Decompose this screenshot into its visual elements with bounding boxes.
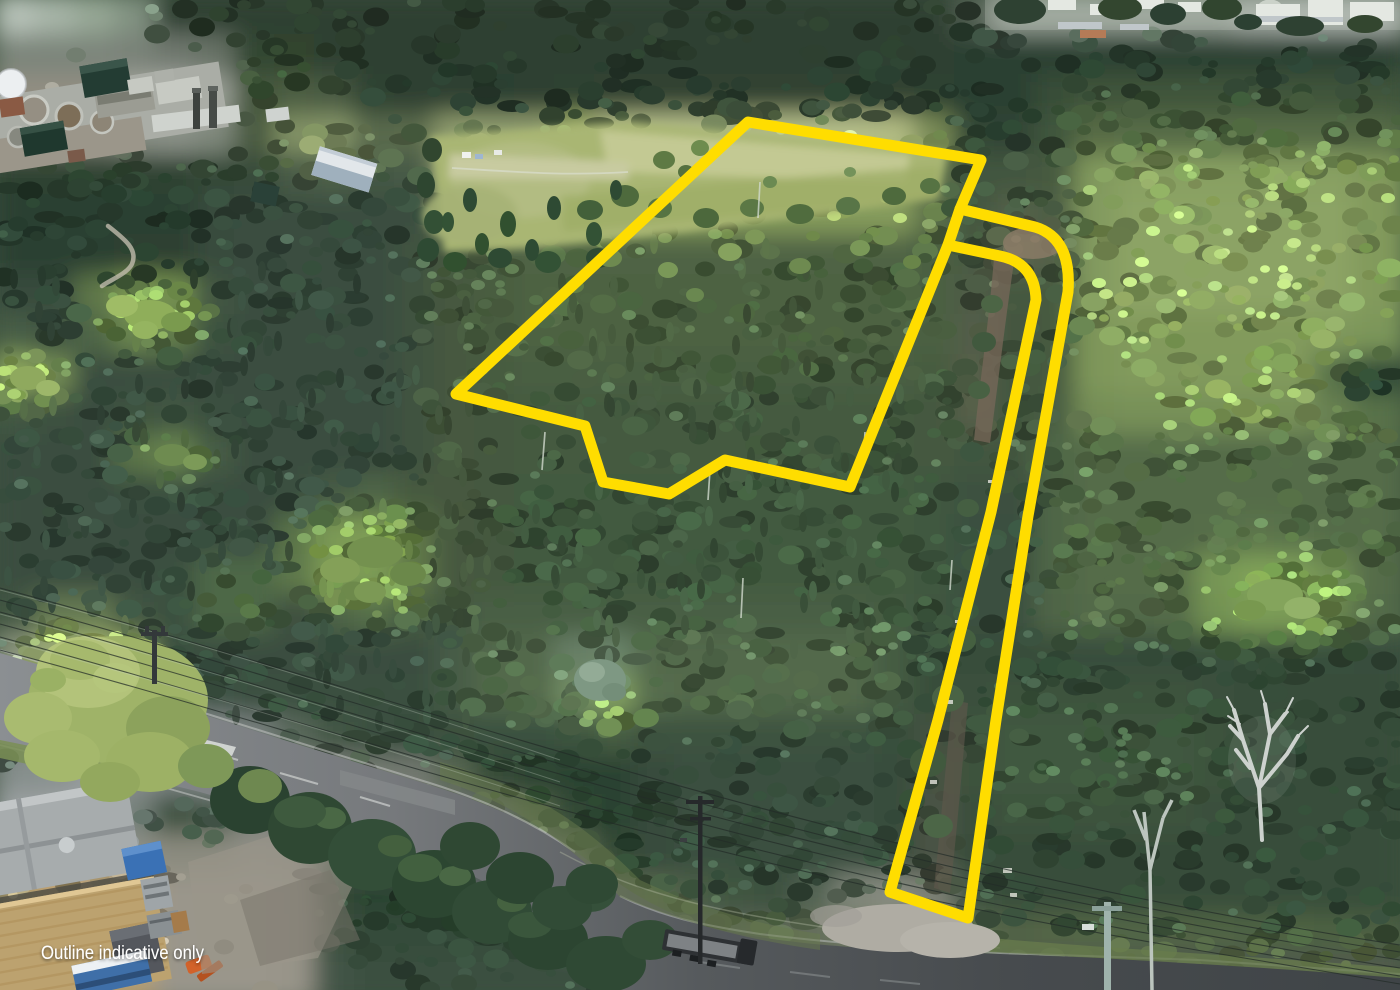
svg-text:Outline indicative only: Outline indicative only	[41, 942, 204, 964]
